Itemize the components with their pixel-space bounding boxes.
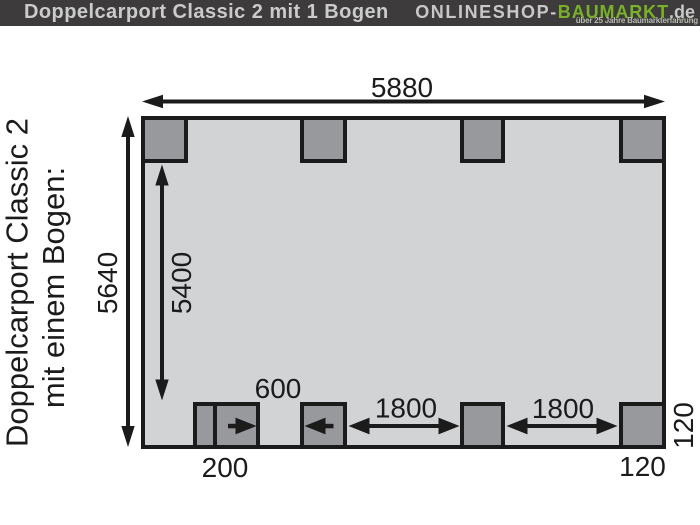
svg-text:1800: 1800 — [375, 393, 437, 424]
svg-text:120: 120 — [668, 402, 699, 449]
svg-text:mit einem Bogen:: mit einem Bogen: — [36, 167, 71, 408]
svg-text:Doppelcarport Classic 2: Doppelcarport Classic 2 — [0, 118, 35, 447]
svg-text:5640: 5640 — [92, 252, 123, 314]
svg-text:200: 200 — [202, 452, 249, 483]
svg-text:120: 120 — [619, 451, 666, 482]
svg-text:5400: 5400 — [166, 252, 197, 314]
svg-text:5880: 5880 — [371, 72, 433, 103]
svg-text:600: 600 — [255, 373, 302, 404]
svg-text:1800: 1800 — [532, 393, 594, 424]
